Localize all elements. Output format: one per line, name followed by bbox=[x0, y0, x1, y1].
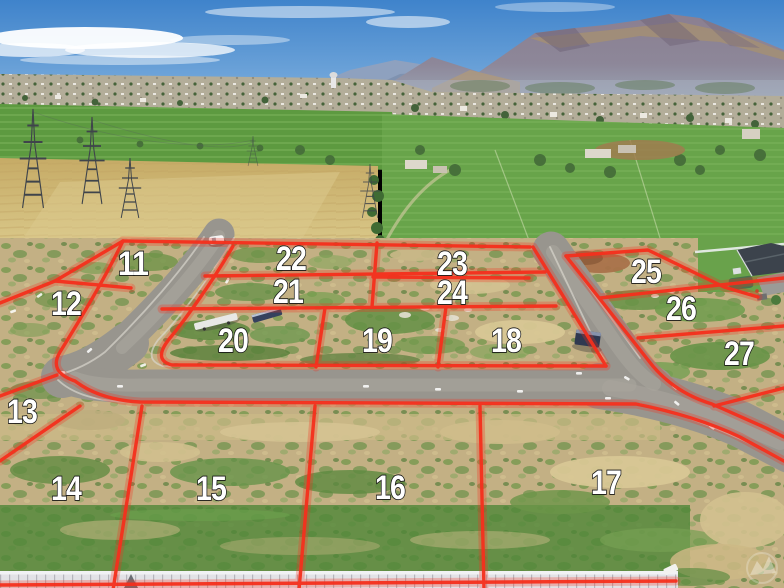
lot-label-16: 16 bbox=[375, 469, 405, 507]
lot-label-13: 13 bbox=[7, 393, 37, 431]
lot-label-15: 15 bbox=[196, 470, 226, 508]
lot-label-18: 18 bbox=[491, 322, 521, 360]
lot-label-11: 11 bbox=[118, 245, 148, 283]
lot-label-21: 21 bbox=[273, 273, 303, 311]
lot-label-20: 20 bbox=[218, 322, 248, 360]
lot-label-19: 19 bbox=[362, 322, 392, 360]
lot-label-27: 27 bbox=[724, 335, 754, 373]
lot-label-26: 26 bbox=[666, 290, 696, 328]
lot-label-24: 24 bbox=[437, 274, 468, 312]
lot-label-22: 22 bbox=[276, 240, 306, 278]
lot-label-12: 12 bbox=[51, 285, 81, 323]
aerial-lot-map-svg: 11 12 13 14 15 16 17 18 19 20 21 22 23 2… bbox=[0, 0, 784, 588]
farm-fields bbox=[0, 104, 784, 245]
lot-label-25: 25 bbox=[631, 253, 661, 291]
aerial-photo: 11 12 13 14 15 16 17 18 19 20 21 22 23 2… bbox=[0, 0, 784, 588]
lot-label-14: 14 bbox=[51, 470, 82, 508]
lot-label-17: 17 bbox=[591, 464, 621, 502]
